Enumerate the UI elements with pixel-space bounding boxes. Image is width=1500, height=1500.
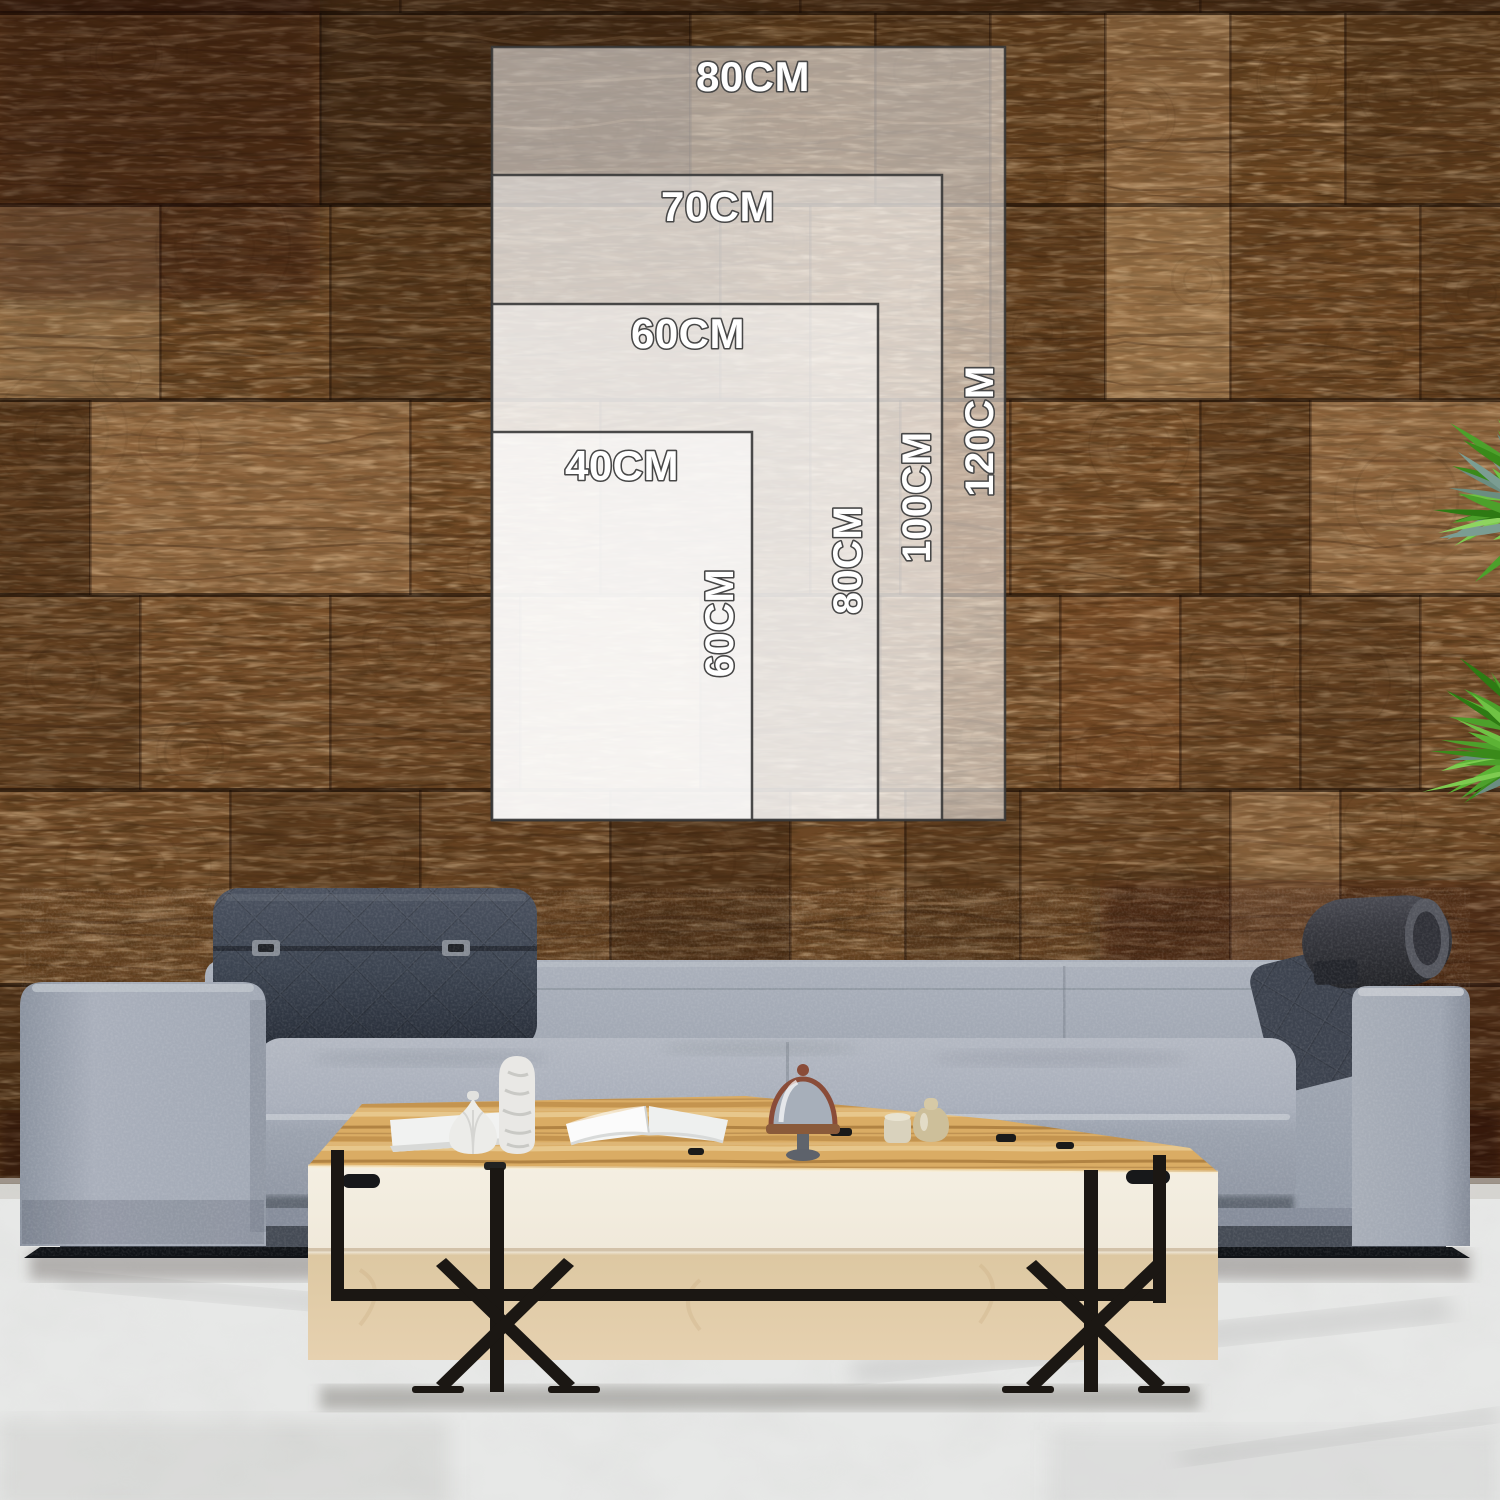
svg-text:70CM: 70CM [661, 183, 775, 230]
svg-text:100CM: 100CM [895, 431, 939, 562]
svg-text:60CM: 60CM [698, 569, 742, 678]
svg-text:120CM: 120CM [958, 365, 1002, 496]
svg-text:80CM: 80CM [826, 506, 870, 615]
svg-text:60CM: 60CM [631, 310, 745, 357]
svg-text:40CM: 40CM [565, 442, 679, 489]
svg-text:80CM: 80CM [696, 53, 810, 100]
